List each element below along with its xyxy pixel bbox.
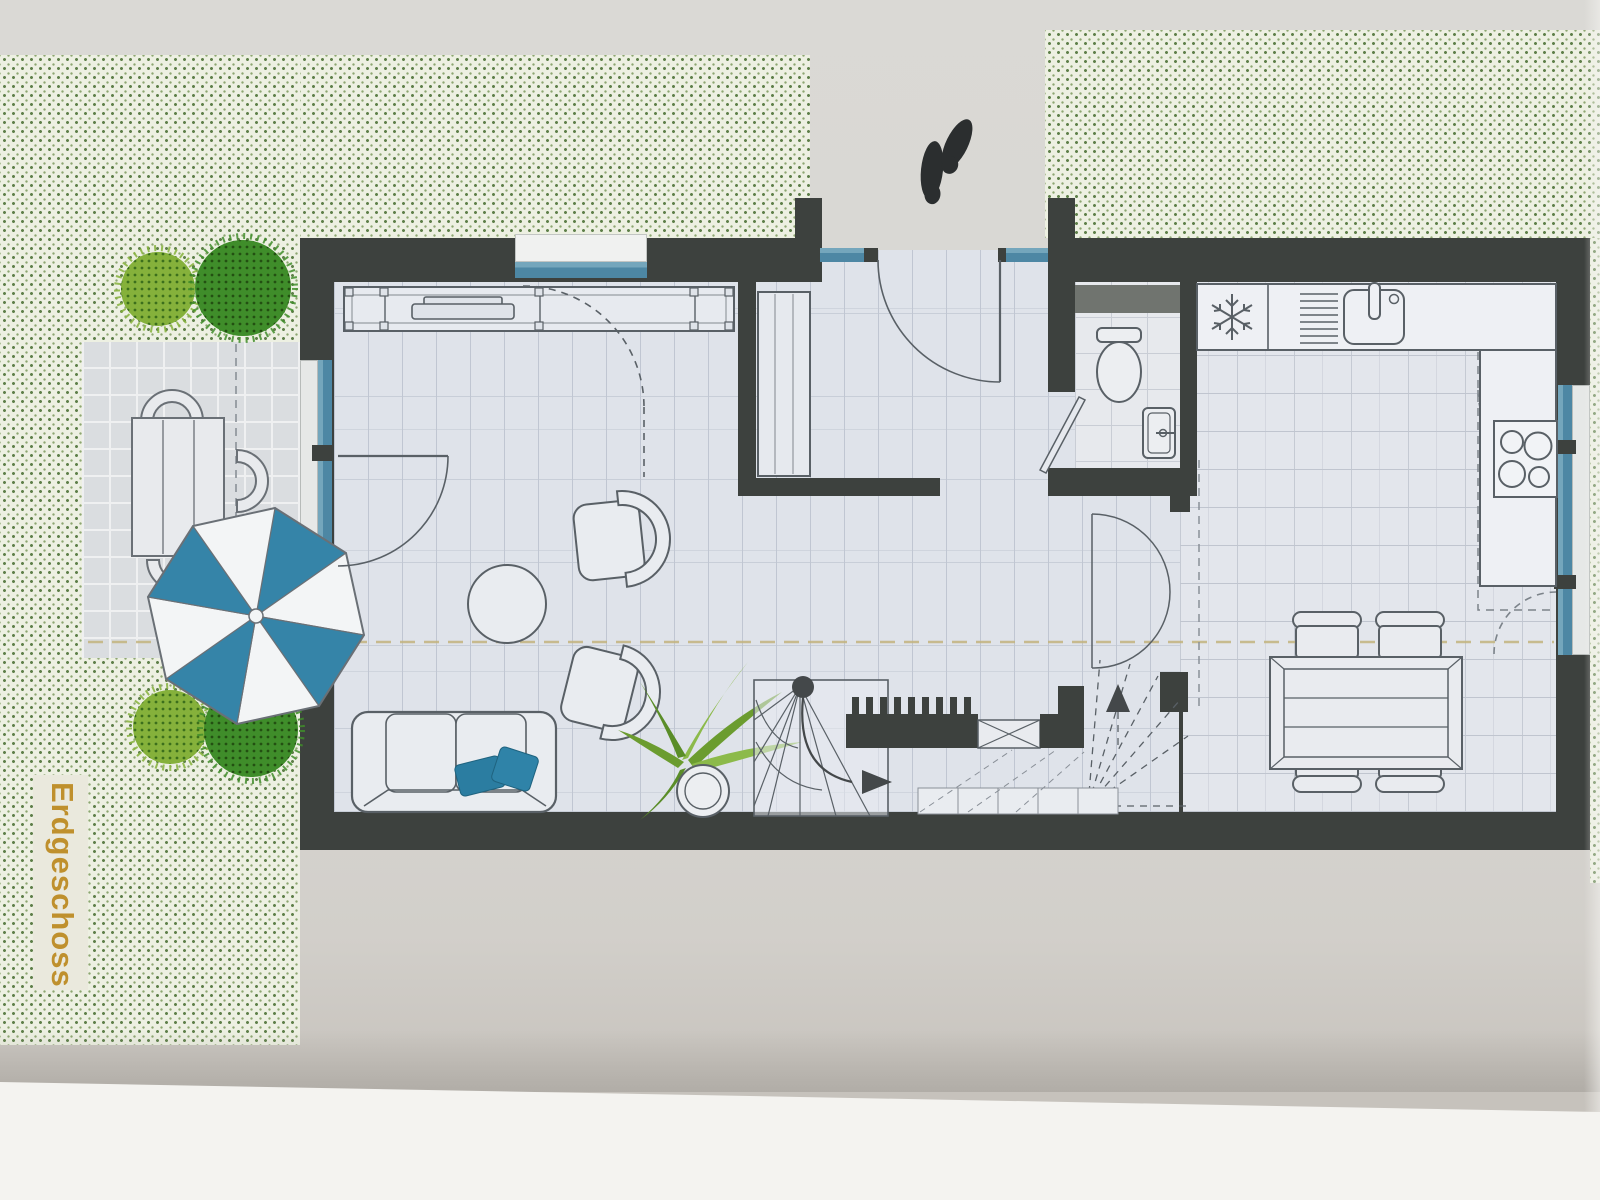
stairs-upper-dashed xyxy=(1088,660,1190,806)
armchair-2 xyxy=(556,634,670,750)
plan-symbols-layer xyxy=(0,0,1600,1200)
armchair-1 xyxy=(571,486,675,591)
washbasin xyxy=(1143,408,1175,458)
stair-newel-dot xyxy=(792,676,814,698)
sideboard xyxy=(344,287,734,331)
floorplan-photo: Erdgeschoss xyxy=(0,0,1600,1200)
tree-top-light xyxy=(117,248,199,330)
tree-top-dark xyxy=(191,236,295,340)
cooktop xyxy=(1494,421,1557,497)
dining-set xyxy=(1270,612,1462,792)
footprints-icon xyxy=(918,115,979,205)
entrance-door xyxy=(878,260,1000,382)
page-edge-shadow xyxy=(0,1030,1600,1092)
tv xyxy=(412,297,514,319)
dining-table xyxy=(1270,657,1462,769)
wc-door xyxy=(1040,397,1085,473)
terrace-door xyxy=(338,456,448,566)
garden-chair xyxy=(141,390,203,421)
dining-chair xyxy=(1293,612,1361,658)
garden-chair xyxy=(237,450,268,512)
coffee-table xyxy=(468,565,546,643)
dining-chair xyxy=(1376,612,1444,658)
hall-wardrobe xyxy=(758,292,810,476)
sink xyxy=(1344,283,1404,344)
sofa xyxy=(352,712,556,812)
page-right-edge xyxy=(1584,0,1600,1130)
toilet xyxy=(1097,328,1141,402)
stairs-lower-treads xyxy=(918,750,1118,814)
stair-up-arrow-icon xyxy=(1106,684,1130,712)
swing-door-kitchen xyxy=(1092,514,1170,668)
